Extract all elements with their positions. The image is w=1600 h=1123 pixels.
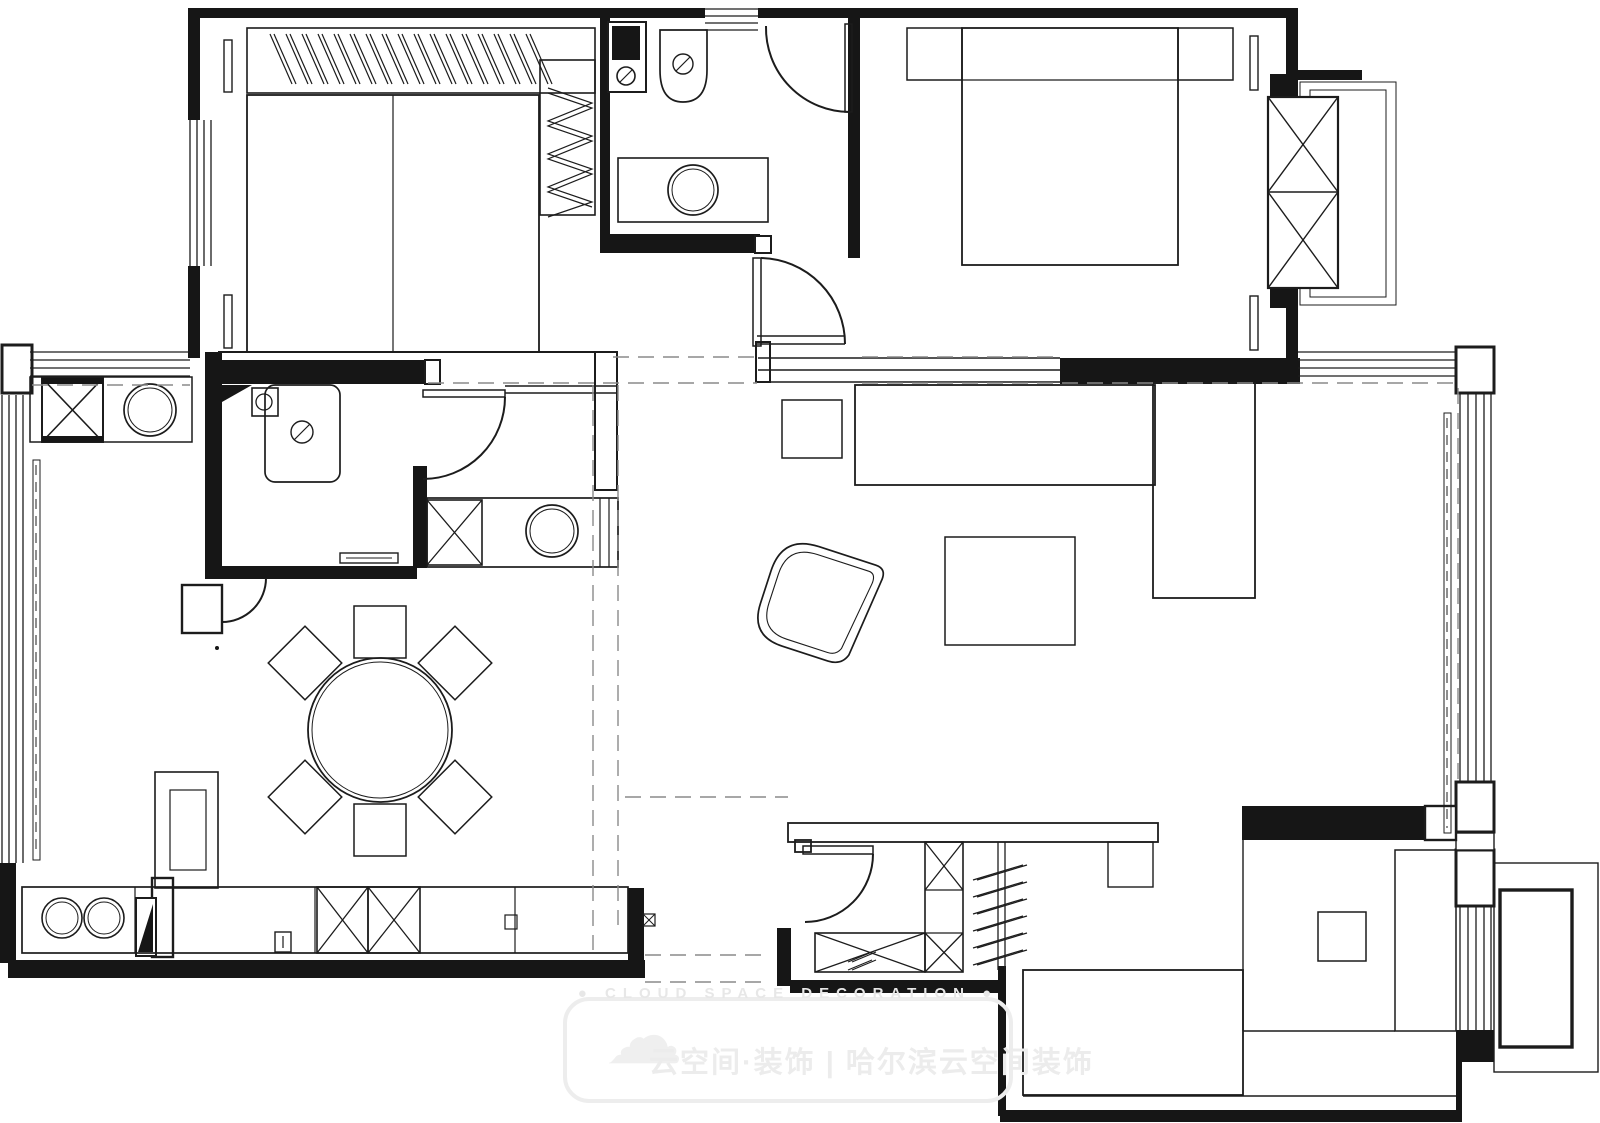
- jamb: [755, 236, 771, 253]
- drain-icon: [256, 394, 272, 410]
- media-box: [1108, 842, 1153, 887]
- bed-second: [962, 28, 1178, 265]
- burner: [42, 898, 82, 938]
- sofa: [855, 385, 1155, 485]
- wall: [758, 8, 1298, 18]
- wall: [0, 863, 16, 963]
- tv-console: [788, 823, 1158, 842]
- wall: [205, 566, 417, 579]
- washer: [128, 388, 172, 432]
- hangers: [977, 899, 1027, 914]
- bed-third: [1023, 970, 1243, 1095]
- rect: [42, 378, 103, 384]
- shaft-black: [612, 26, 640, 60]
- corner-arc: [222, 578, 266, 622]
- desk: [1395, 850, 1456, 1031]
- side-table: [782, 400, 842, 458]
- wall: [777, 928, 791, 986]
- hangers: [977, 933, 1027, 948]
- line: [676, 57, 690, 71]
- wall: [188, 8, 705, 18]
- dot: [215, 646, 219, 650]
- door-leaf: [803, 846, 873, 854]
- wall-panel: [224, 295, 232, 348]
- wall: [848, 8, 860, 258]
- burner: [88, 902, 120, 934]
- wall: [600, 234, 760, 253]
- hangers-side: [548, 88, 592, 217]
- column: [1456, 347, 1494, 393]
- hangers: [977, 865, 1027, 880]
- wall: [188, 266, 200, 358]
- basin: [668, 165, 718, 215]
- wall: [1456, 1060, 1462, 1112]
- nightstand: [1178, 28, 1233, 80]
- chair: [418, 760, 492, 834]
- wall: [1286, 70, 1362, 80]
- wall-panel: [1250, 36, 1258, 90]
- tv-wall: [1242, 806, 1426, 840]
- toilet: [660, 30, 707, 102]
- basin: [530, 509, 574, 553]
- floor-plan-page: ● CLOUD SPACE DECORATION ● ☁ 云空间·装饰 | 哈尔…: [0, 0, 1600, 1123]
- hangers: [852, 960, 876, 970]
- hangers: [848, 960, 872, 970]
- dining-table: [308, 658, 452, 802]
- accent-chair: [760, 545, 875, 659]
- desk-chair: [1318, 912, 1366, 961]
- wall: [1000, 1110, 1462, 1122]
- basin: [526, 505, 578, 557]
- shower-wedge: [222, 385, 252, 402]
- toilet: [265, 385, 340, 482]
- hangers: [848, 952, 872, 962]
- wall-panel: [224, 40, 232, 92]
- floor-plan-drawing: [0, 0, 1600, 1123]
- chair: [354, 606, 406, 658]
- dining-table: [312, 662, 448, 798]
- wall: [222, 360, 425, 384]
- wall: [205, 352, 222, 578]
- wall: [628, 888, 644, 962]
- wall: [1456, 1030, 1494, 1062]
- door-leaf: [753, 258, 761, 346]
- hangers: [977, 882, 1027, 897]
- wall: [8, 960, 645, 978]
- column: [1456, 782, 1494, 832]
- burner: [84, 898, 124, 938]
- wall-gap: [1456, 833, 1494, 850]
- basin: [672, 169, 714, 211]
- door-swing: [423, 397, 505, 479]
- ac-platform: [1494, 863, 1598, 1072]
- column: [1456, 850, 1494, 906]
- chair: [268, 760, 342, 834]
- rect: [42, 436, 103, 442]
- jamb: [425, 360, 440, 384]
- door-swing: [766, 26, 850, 112]
- column: [2, 345, 32, 393]
- vanity: [618, 158, 768, 222]
- chair: [354, 804, 406, 856]
- door-swing: [805, 854, 873, 922]
- wall: [790, 980, 1002, 993]
- door-swing: [761, 258, 845, 344]
- chair: [268, 626, 342, 700]
- wall: [1270, 286, 1296, 308]
- feature-wall: [1060, 358, 1300, 384]
- coffee-table: [945, 537, 1075, 645]
- wall: [188, 8, 200, 120]
- jamb: [756, 342, 770, 382]
- hangers-side: [548, 93, 592, 207]
- vanity: [427, 498, 618, 567]
- door-leaf: [423, 390, 505, 397]
- wall-panel: [1250, 296, 1258, 350]
- niche: [182, 585, 222, 633]
- laundry-counter: [30, 377, 192, 442]
- burner: [46, 902, 78, 934]
- wall: [413, 466, 427, 568]
- chair: [418, 626, 492, 700]
- wall: [1270, 74, 1296, 98]
- hangers: [977, 950, 1027, 965]
- wall-double: [595, 352, 617, 490]
- nightstand: [907, 28, 962, 80]
- line: [294, 424, 310, 440]
- ac-platform: [1500, 890, 1572, 1047]
- cabinet: [170, 790, 206, 870]
- chaise: [1153, 383, 1255, 598]
- hangers: [977, 916, 1027, 931]
- washer: [124, 384, 176, 436]
